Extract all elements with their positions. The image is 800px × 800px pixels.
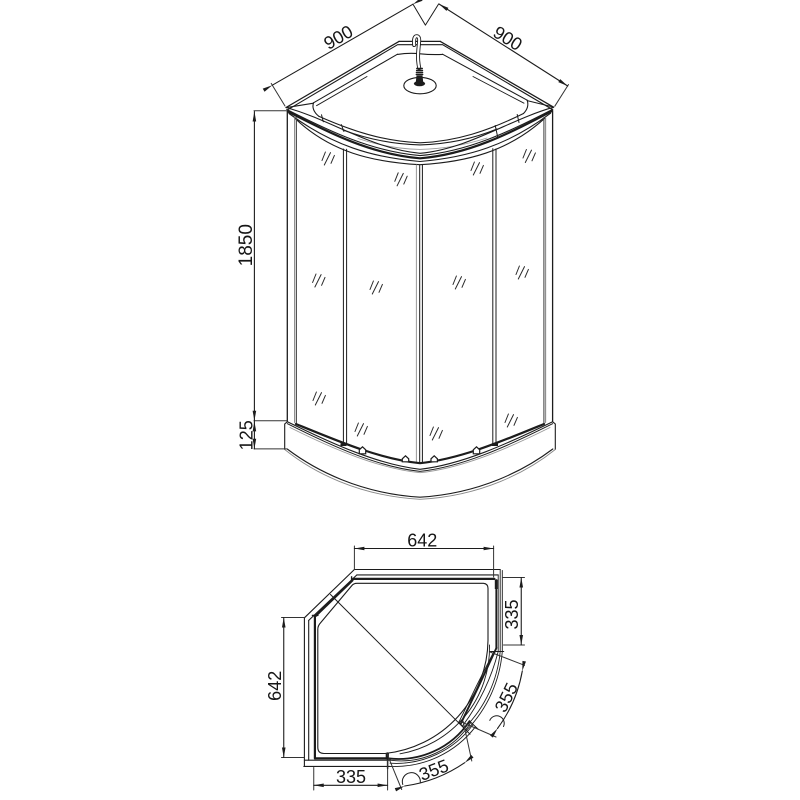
svg-text:335: 335 [336, 767, 366, 787]
svg-text:900: 900 [320, 21, 356, 53]
svg-text:125: 125 [236, 420, 256, 450]
svg-text:335: 335 [502, 599, 522, 629]
svg-text:900: 900 [490, 22, 526, 55]
svg-text:1850: 1850 [236, 224, 257, 266]
svg-text:642: 642 [407, 531, 437, 551]
svg-text:642: 642 [265, 671, 285, 701]
